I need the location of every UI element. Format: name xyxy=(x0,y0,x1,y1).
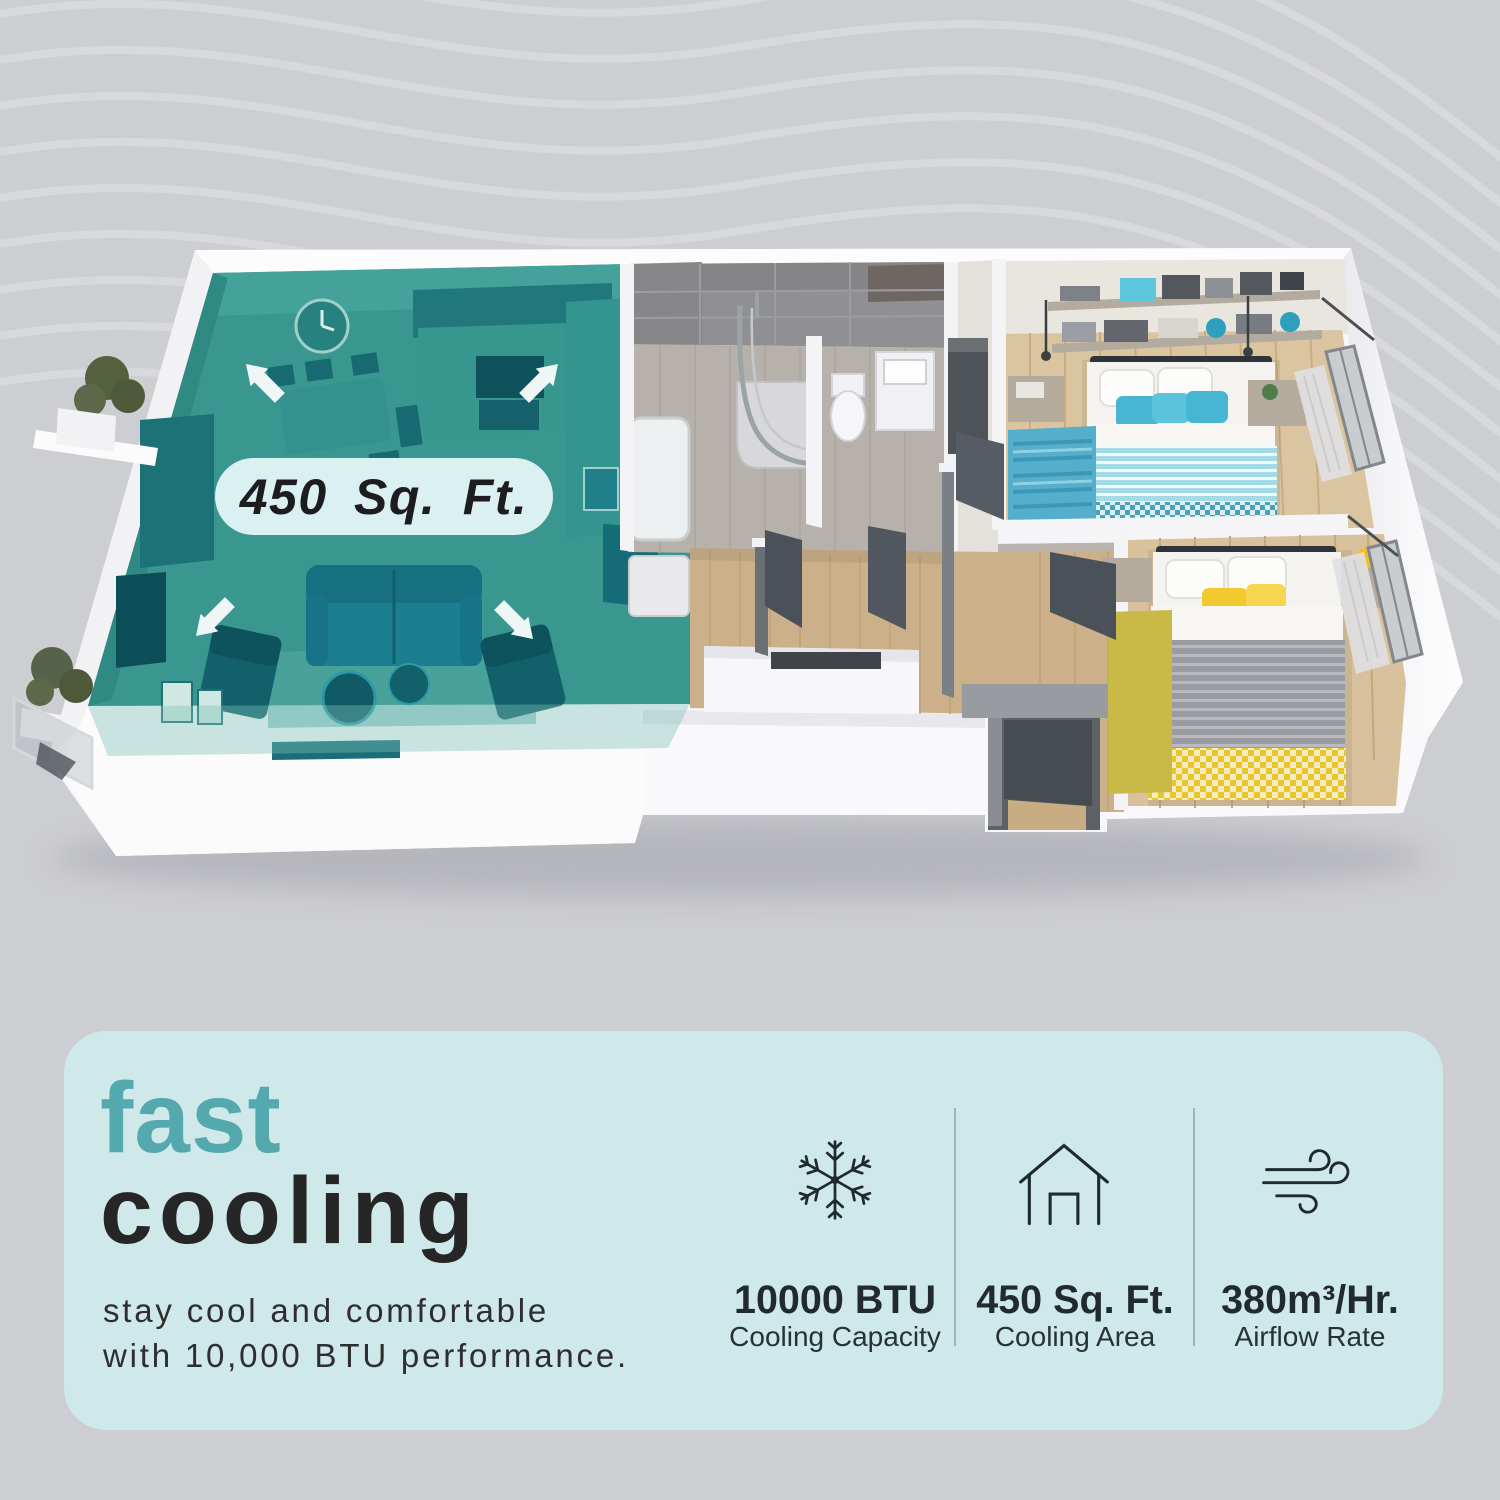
svg-text:450 Sq. Ft.: 450 Sq. Ft. xyxy=(239,469,529,525)
